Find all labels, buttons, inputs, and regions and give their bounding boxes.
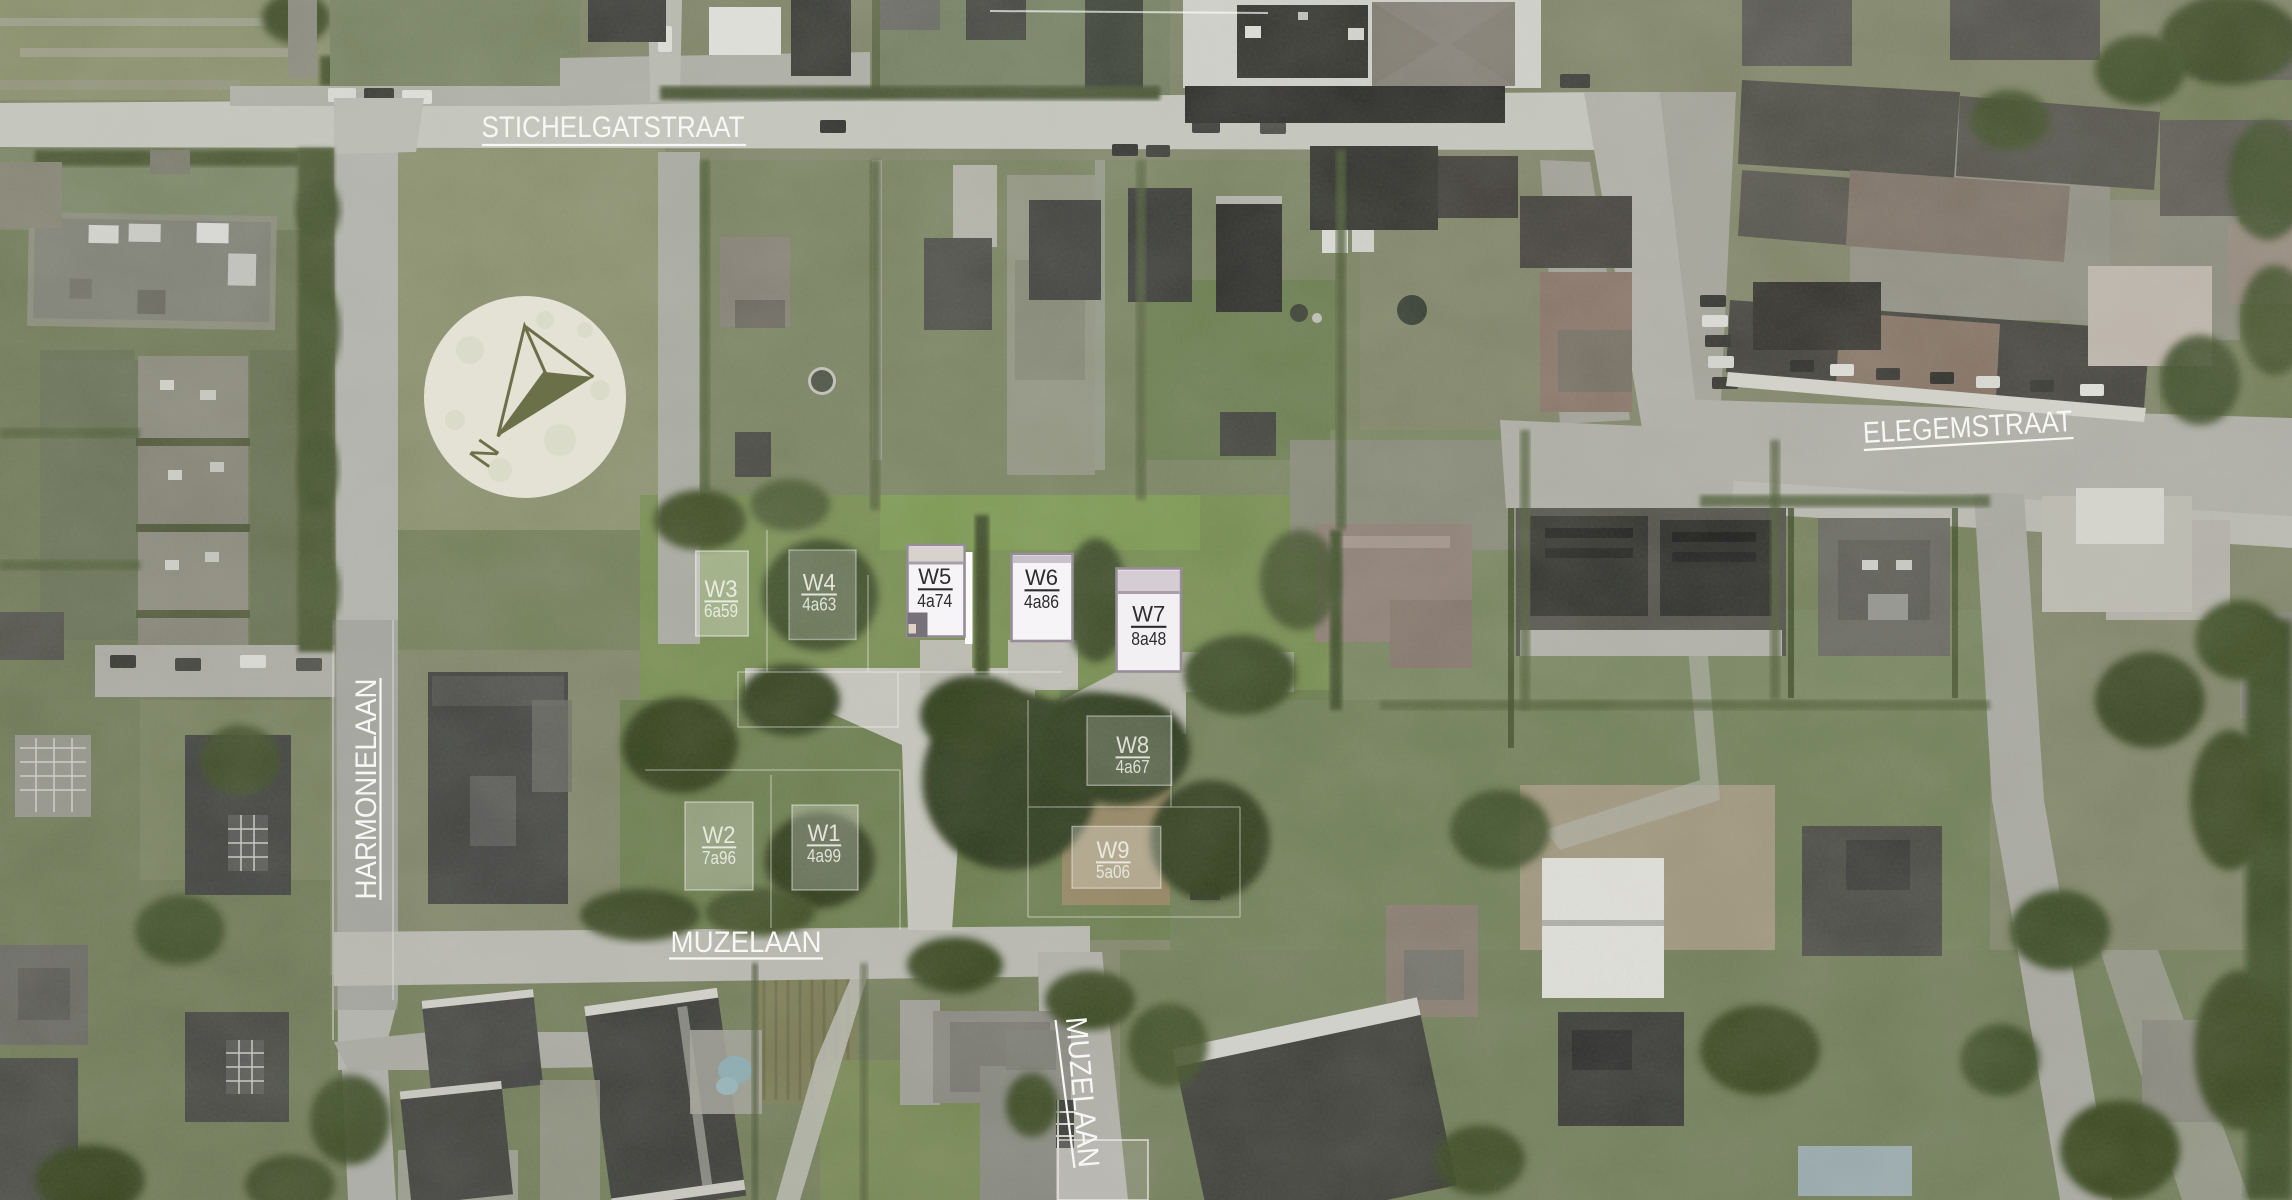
svg-text:6a59: 6a59 (704, 601, 738, 621)
svg-text:W6: W6 (1025, 565, 1058, 590)
svg-text:W2: W2 (703, 822, 736, 849)
svg-text:W4: W4 (803, 570, 836, 597)
svg-text:4a63: 4a63 (802, 595, 836, 615)
svg-text:4a99: 4a99 (807, 846, 841, 866)
svg-text:5a06: 5a06 (1096, 862, 1130, 882)
svg-text:W3: W3 (705, 576, 738, 603)
svg-text:4a74: 4a74 (917, 590, 952, 611)
svg-text:W7: W7 (1132, 602, 1165, 627)
svg-text:4a86: 4a86 (1024, 591, 1059, 612)
svg-text:STICHELGATSTRAAT: STICHELGATSTRAAT (482, 111, 745, 144)
svg-text:MUZELAAN: MUZELAAN (671, 926, 822, 959)
svg-text:4a67: 4a67 (1116, 757, 1150, 777)
svg-text:W5: W5 (918, 564, 951, 589)
svg-text:7a96: 7a96 (702, 848, 736, 868)
svg-text:HARMONIELAAN: HARMONIELAAN (350, 679, 383, 900)
svg-text:W8: W8 (1116, 732, 1149, 759)
svg-text:W1: W1 (808, 820, 841, 847)
svg-text:8a48: 8a48 (1131, 628, 1166, 649)
svg-text:W9: W9 (1097, 837, 1130, 864)
